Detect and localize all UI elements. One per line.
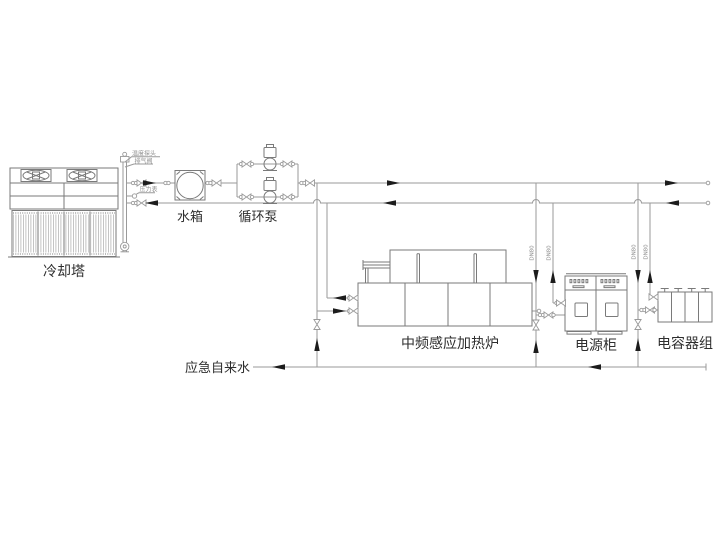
valve-icon bbox=[349, 308, 358, 314]
piping-diagram: 温度探头 排气阀 压力表 冷却塔 水箱 循环泵 中频感应加热炉 bbox=[0, 0, 720, 540]
flow-arrow-icon bbox=[635, 270, 640, 283]
cabinet-supply-riser bbox=[536, 183, 565, 367]
furnace-label: 中频感应加热炉 bbox=[401, 335, 499, 352]
fan-icon bbox=[23, 170, 49, 180]
cabinet-window bbox=[606, 303, 619, 317]
valve-icon bbox=[212, 180, 221, 186]
flow-arrow-icon bbox=[333, 295, 346, 300]
pump-icon bbox=[263, 178, 277, 204]
drain-pump-icon bbox=[123, 245, 126, 248]
flange-icon bbox=[250, 195, 253, 198]
capacitor-supply-riser bbox=[638, 183, 658, 367]
flow-arrow-icon bbox=[533, 270, 538, 283]
pipe-size-tags: DN80 DN80 DN80 DN80 bbox=[530, 244, 650, 261]
shutoff-valve-icon bbox=[314, 320, 320, 330]
air-vent-label: 排气阀 bbox=[135, 157, 153, 165]
cabinet-window bbox=[575, 303, 588, 317]
pressure-gauge-icon bbox=[132, 194, 136, 198]
pipe-end-icon bbox=[706, 181, 710, 185]
flow-arrow-icon bbox=[314, 338, 319, 351]
flow-arrow-icon bbox=[383, 200, 396, 205]
cabinet-foot bbox=[598, 332, 622, 335]
valve-icon bbox=[283, 194, 292, 200]
valve-icon bbox=[557, 300, 566, 306]
flow-arrow-icon bbox=[333, 308, 346, 313]
shutoff-valve-icon bbox=[635, 320, 641, 330]
circulation-pumps bbox=[263, 145, 277, 204]
flow-arrow-icon bbox=[647, 270, 652, 283]
furnace-return-riser bbox=[327, 203, 358, 298]
valve-icon bbox=[283, 161, 292, 167]
flow-arrow-icon bbox=[145, 200, 158, 205]
flange-icon bbox=[552, 313, 555, 316]
flange-icon bbox=[250, 162, 253, 165]
valve-icon bbox=[242, 161, 251, 167]
valve-icon bbox=[349, 295, 358, 301]
shutoff-valve-icon bbox=[533, 320, 539, 330]
flange-icon bbox=[291, 162, 294, 165]
flange-icon bbox=[653, 308, 656, 311]
cabinet-foot bbox=[567, 332, 591, 335]
flow-arrow-icon bbox=[143, 180, 156, 185]
flow-arrow-icon bbox=[550, 270, 555, 283]
pipe-size-tag: DN80 bbox=[547, 245, 553, 261]
pipe-size-tag: DN80 bbox=[644, 244, 650, 260]
fan-icon bbox=[69, 170, 95, 180]
valve-icon bbox=[649, 294, 658, 300]
flow-arrow-icon bbox=[588, 364, 601, 369]
pipe-end-icon bbox=[537, 309, 541, 313]
flow-arrow-icon bbox=[635, 338, 640, 351]
emergency-water-label: 应急自来水 bbox=[185, 360, 250, 376]
cooling-tower-label: 冷却塔 bbox=[43, 264, 85, 280]
capacitor-bank-label: 电容器组 bbox=[657, 335, 713, 352]
power-cabinet bbox=[565, 274, 627, 334]
pipe-size-tag: DN80 bbox=[530, 245, 536, 261]
valve-icon bbox=[137, 200, 146, 206]
cabinet-return-riser bbox=[553, 203, 565, 303]
air-vent-icon bbox=[123, 152, 127, 156]
flange-icon bbox=[291, 195, 294, 198]
pipe-end-icon bbox=[706, 201, 710, 205]
return-pipe bbox=[127, 200, 707, 203]
pump-icon bbox=[263, 145, 277, 171]
flange-icon bbox=[167, 181, 170, 184]
flow-arrow-icon bbox=[272, 364, 285, 369]
flow-arrow-icon bbox=[533, 340, 538, 353]
flow-arrow-icon bbox=[665, 180, 678, 185]
circulation-pump-label: 循环泵 bbox=[238, 210, 277, 225]
valves bbox=[131, 161, 658, 330]
diagram-svg: 温度探头 排气阀 压力表 冷却塔 水箱 循环泵 中频感应加热炉 bbox=[0, 0, 720, 540]
pipe-size-tag: DN80 bbox=[632, 244, 638, 260]
flow-arrow-icon bbox=[387, 180, 400, 185]
water-tank bbox=[175, 171, 205, 201]
induction-furnace bbox=[358, 250, 532, 326]
flow-arrow-icon bbox=[666, 200, 679, 205]
furnace-supply-riser bbox=[317, 183, 358, 367]
pressure-gauge-label: 压力表 bbox=[140, 186, 158, 194]
valve-icon bbox=[242, 194, 251, 200]
valve-icon bbox=[306, 180, 315, 186]
temp-probe-label: 温度探头 bbox=[132, 150, 156, 158]
cooling-tower bbox=[8, 168, 120, 257]
capacitor-terminals bbox=[661, 289, 710, 293]
capacitor-bank bbox=[658, 289, 712, 323]
water-tank-label: 水箱 bbox=[177, 209, 203, 225]
power-cabinet-label: 电源柜 bbox=[575, 338, 617, 354]
indicator-lights bbox=[570, 280, 619, 288]
